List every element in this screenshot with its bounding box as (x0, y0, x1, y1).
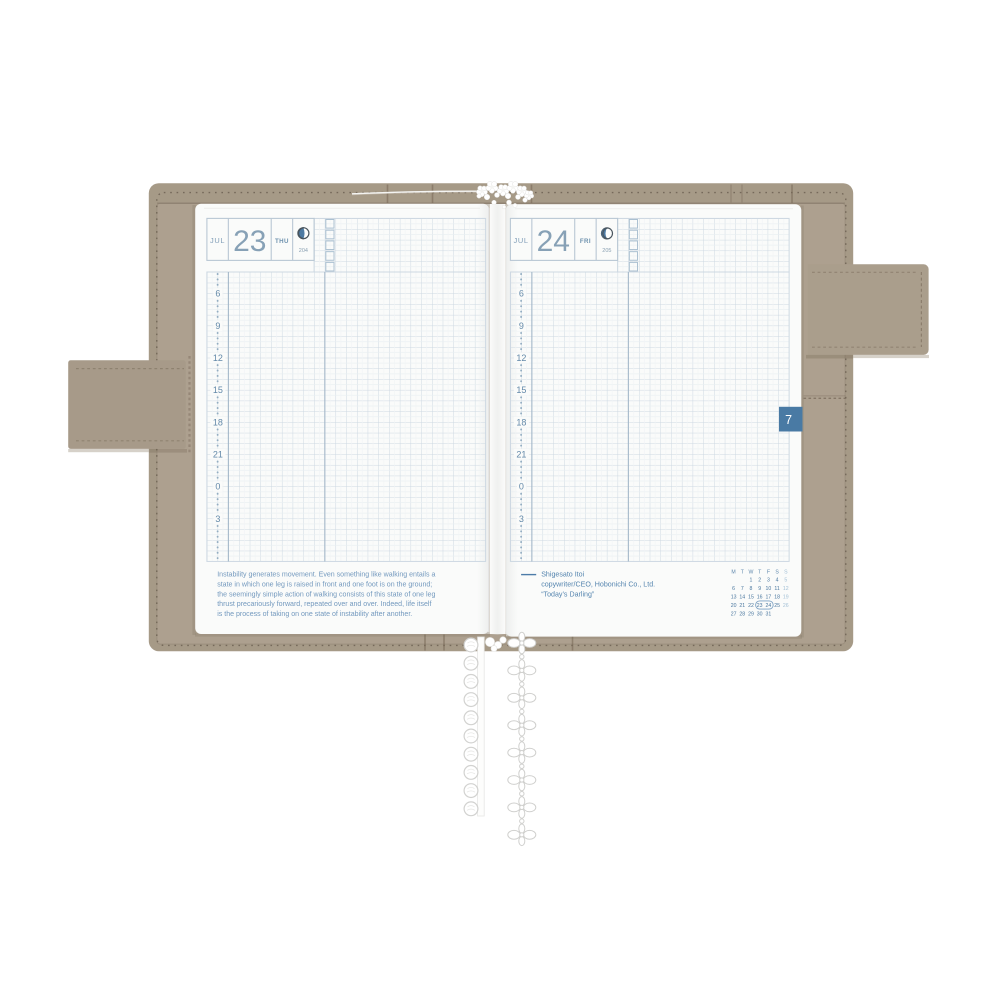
svg-text:20: 20 (731, 603, 737, 609)
svg-text:18: 18 (516, 417, 526, 427)
svg-text:15: 15 (213, 385, 223, 395)
svg-text:27: 27 (731, 611, 737, 617)
svg-text:16: 16 (757, 595, 763, 601)
svg-text:S: S (775, 569, 779, 575)
svg-text:31: 31 (766, 611, 772, 617)
svg-text:THU: THU (275, 238, 289, 245)
svg-text:1: 1 (750, 578, 753, 584)
svg-text:Instability generates movement: Instability generates movement. Even som… (217, 572, 435, 579)
svg-text:26: 26 (783, 603, 789, 609)
svg-text:14: 14 (739, 595, 745, 601)
svg-text:3: 3 (519, 514, 524, 524)
svg-text:state in which one leg is rais: state in which one leg is raised in fron… (217, 581, 432, 588)
svg-text:19: 19 (783, 595, 789, 601)
svg-text:the seemingly simple action of: the seemingly simple action of walking c… (217, 591, 435, 598)
svg-text:3: 3 (215, 514, 220, 524)
svg-text:9: 9 (758, 586, 761, 592)
svg-text:S: S (784, 569, 788, 575)
svg-text:15: 15 (516, 385, 526, 395)
svg-text:M: M (731, 569, 735, 575)
svg-text:JUL: JUL (513, 236, 528, 245)
svg-text:thrust precariously forward, r: thrust precariously forward, repeated ov… (217, 601, 431, 608)
svg-text:“Today’s Darling”: “Today’s Darling” (541, 590, 595, 598)
svg-text:18: 18 (774, 595, 780, 601)
svg-text:24: 24 (766, 603, 772, 609)
svg-text:6: 6 (215, 289, 220, 299)
svg-text:21: 21 (213, 449, 223, 459)
svg-text:is the process of taking on on: is the process of taking on one state of… (217, 611, 412, 618)
svg-text:21: 21 (739, 603, 745, 609)
svg-text:24: 24 (537, 225, 570, 258)
svg-text:9: 9 (215, 321, 220, 331)
svg-text:7: 7 (785, 413, 792, 427)
svg-text:0: 0 (215, 482, 220, 492)
svg-text:13: 13 (731, 595, 737, 601)
svg-text:25: 25 (774, 603, 780, 609)
svg-text:23: 23 (233, 225, 266, 258)
svg-text:Shigesato Itoi: Shigesato Itoi (541, 571, 584, 579)
svg-text:23: 23 (757, 603, 763, 609)
svg-text:6: 6 (519, 289, 524, 299)
svg-text:30: 30 (757, 611, 763, 617)
svg-text:FRI: FRI (580, 238, 591, 245)
svg-text:9: 9 (519, 321, 524, 331)
svg-text:11: 11 (774, 586, 779, 592)
svg-text:12: 12 (213, 353, 223, 363)
svg-text:204: 204 (299, 248, 308, 254)
svg-text:7: 7 (741, 586, 744, 592)
svg-text:4: 4 (776, 578, 779, 584)
svg-text:8: 8 (750, 586, 753, 592)
svg-text:21: 21 (516, 449, 526, 459)
svg-text:29: 29 (748, 611, 754, 617)
svg-text:10: 10 (766, 586, 772, 592)
svg-text:W: W (749, 569, 754, 575)
svg-text:6: 6 (732, 586, 735, 592)
svg-text:2: 2 (758, 578, 761, 584)
svg-text:12: 12 (783, 586, 789, 592)
svg-text:18: 18 (213, 417, 223, 427)
svg-text:15: 15 (748, 595, 754, 601)
svg-text:22: 22 (748, 603, 754, 609)
svg-text:12: 12 (516, 353, 526, 363)
svg-text:5: 5 (784, 578, 787, 584)
svg-text:copywriter/CEO, Hobonichi Co.,: copywriter/CEO, Hobonichi Co., Ltd. (541, 581, 655, 589)
svg-text:F: F (767, 569, 770, 575)
svg-text:17: 17 (766, 595, 772, 601)
svg-text:JUL: JUL (210, 236, 225, 245)
svg-text:3: 3 (767, 578, 770, 584)
svg-text:205: 205 (602, 248, 611, 254)
svg-text:0: 0 (519, 482, 524, 492)
svg-text:28: 28 (739, 611, 745, 617)
